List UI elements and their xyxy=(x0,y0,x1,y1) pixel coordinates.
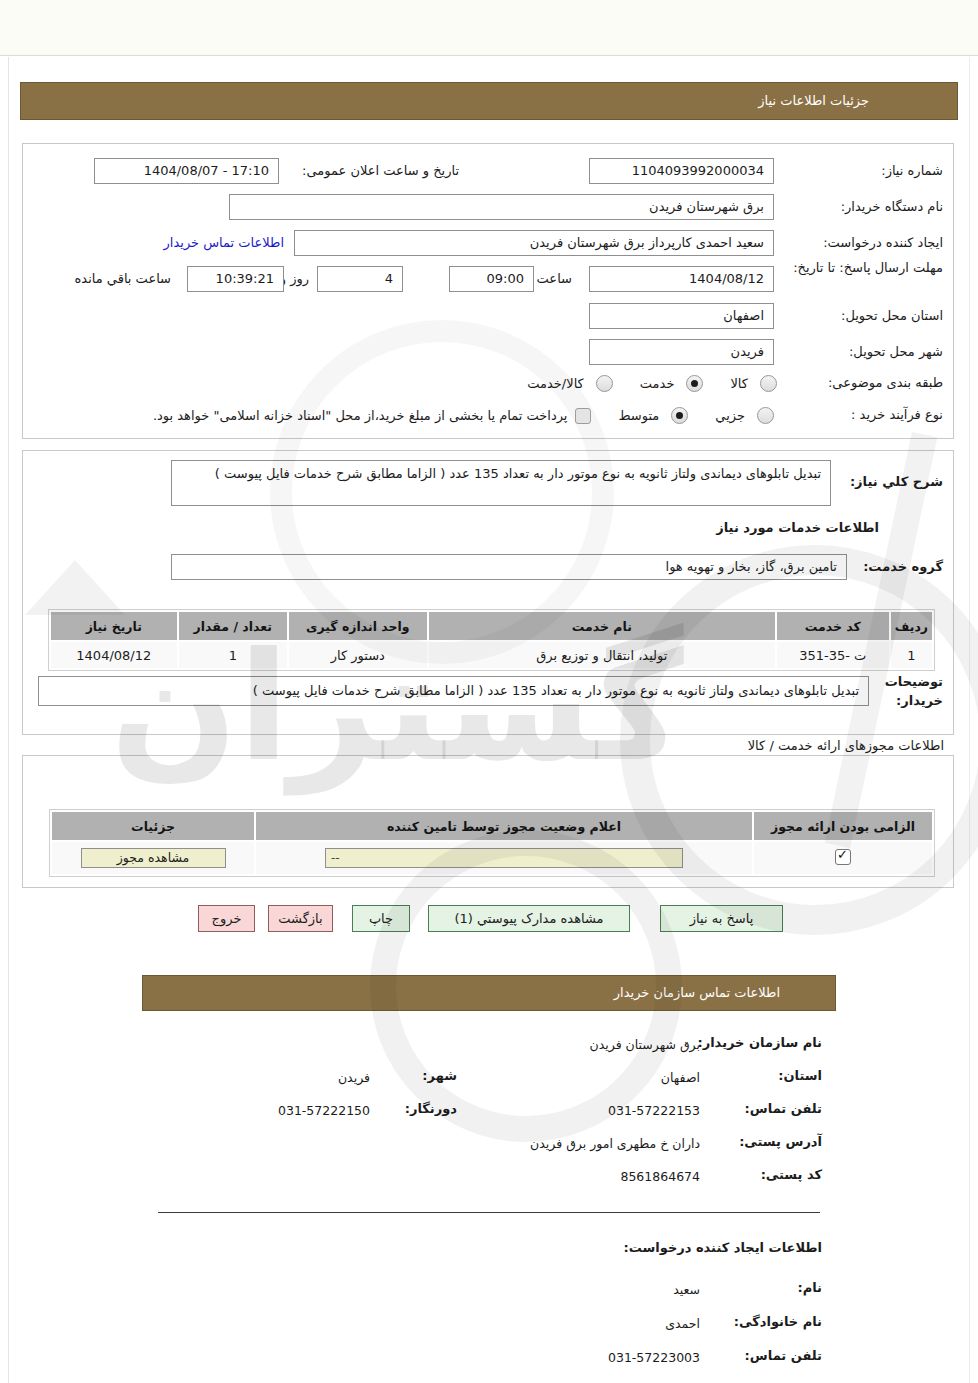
services-table: ردیف کد خدمت نام خدمت واحد اندازه گیری ت… xyxy=(48,609,935,671)
radio-service[interactable] xyxy=(686,375,703,392)
right-edge-divider xyxy=(969,57,970,1383)
service-group-value: تامین برق، گاز، بخار و تهویه هوا xyxy=(666,559,837,574)
exit-button[interactable]: خروج xyxy=(198,905,255,932)
remaining-time-value: 10:39:21 xyxy=(216,267,274,291)
treasury-option: پرداخت تمام یا بخشی از مبلغ خرید،از محل … xyxy=(153,408,592,424)
radio-goods-service[interactable] xyxy=(596,375,613,392)
license-required-checkbox[interactable] xyxy=(835,849,851,865)
category-option-goods: کالا xyxy=(730,375,777,392)
delivery-province-label: استان محل تحویل: xyxy=(841,303,943,329)
postal-address-label: آدرس پستی: xyxy=(739,1132,822,1152)
cell-license-details: مشاهده مجوز xyxy=(52,842,254,874)
col-service-name: نام خدمت xyxy=(429,612,775,640)
cell-service-code: 351-35- ت xyxy=(777,642,889,668)
process-type-label: نوع فرآیند خرید : xyxy=(851,406,943,424)
first-name-label: نام: xyxy=(798,1278,823,1298)
postal-code-label: کد پستی: xyxy=(761,1165,822,1185)
last-name-label: نام خانوادگی: xyxy=(734,1312,822,1332)
cell-unit: دستور کار xyxy=(289,642,427,668)
remaining-time-field[interactable]: 10:39:21 xyxy=(187,266,284,292)
radio-goods[interactable] xyxy=(760,375,777,392)
back-button[interactable]: بازگشت xyxy=(268,905,333,932)
buyer-org-field[interactable]: برق شهرستان فریدن xyxy=(229,194,774,220)
category-option-service: خدمت xyxy=(640,375,704,392)
deadline-time-value: 09:00 xyxy=(487,267,524,291)
service-group-label: گروه خدمت: xyxy=(863,554,943,580)
request-creator-value: سعید احمدی کارپرداز برق شهرستان فریدن xyxy=(530,235,764,250)
buyer-contact-bar: اطلاعات تماس سازمان خریدار xyxy=(142,975,836,1011)
radio-minor[interactable] xyxy=(757,407,774,424)
license-status-input[interactable]: -- xyxy=(325,848,683,868)
category-option-goods-service: کالا/خدمت xyxy=(527,375,613,392)
radio-goods-label: کالا xyxy=(730,376,748,391)
radio-minor-label: جزيي xyxy=(715,408,745,423)
creator-info-heading: اطلاعات ایجاد کننده درخواست: xyxy=(624,1238,822,1258)
need-number-value: 1104093992000034 xyxy=(632,159,764,183)
buyer-notes-value: تبدیل تابلوهای دیماندی ولتاز ثانویه به ن… xyxy=(253,683,859,698)
org-name-label: نام سازمان خریدار: xyxy=(697,1033,822,1053)
cell-service-name: تولید، انتقال و توزیع برق xyxy=(429,642,775,668)
buyer-notes-label: توضیحات خریدار: xyxy=(865,672,943,710)
need-info-form: شماره نیاز: 1104093992000034 تاریخ و ساع… xyxy=(22,143,954,439)
phone-value: 031-57222153 xyxy=(608,1103,700,1118)
buyer-contact-link[interactable]: اطلاعات تماس خریدار xyxy=(164,235,284,250)
days-and-label: روز و xyxy=(280,266,309,292)
services-info-heading: اطلاعات خدمات مورد نیاز xyxy=(716,515,879,541)
delivery-province-value: اصفهان xyxy=(723,308,764,323)
respond-button[interactable]: پاسخ به نیاز xyxy=(660,905,783,932)
services-table-header-row: ردیف کد خدمت نام خدمت واحد اندازه گیری ت… xyxy=(51,612,932,640)
delivery-city-field[interactable]: فریدن xyxy=(589,339,774,365)
col-license-details: جزئیات xyxy=(52,812,254,840)
creator-phone-label: تلفن تماس: xyxy=(745,1346,822,1366)
request-creator-field[interactable]: سعید احمدی کارپرداز برق شهرستان فریدن xyxy=(294,230,774,256)
cell-need-date: 1404/08/12 xyxy=(51,642,177,668)
buyer-contact-bar-title: اطلاعات تماس سازمان خریدار xyxy=(614,985,780,1000)
delivery-province-field[interactable]: اصفهان xyxy=(589,303,774,329)
services-section: شرح کلي نیاز: تبدیل تابلوهای دیماندی ولت… xyxy=(22,450,954,735)
radio-goods-service-label: کالا/خدمت xyxy=(527,376,584,391)
treasury-checkbox[interactable] xyxy=(575,408,591,424)
need-number-field[interactable]: 1104093992000034 xyxy=(589,158,774,184)
announce-datetime-field[interactable]: 1404/08/07 - 17:10 xyxy=(94,158,279,184)
last-name-value: احمدی xyxy=(665,1316,700,1331)
delivery-city-value: فریدن xyxy=(731,344,764,359)
deadline-date-value: 1404/08/12 xyxy=(689,267,764,291)
licenses-table: الزامی بودن ارائه مجوز اعلام وضعیت مجوز … xyxy=(49,809,935,877)
print-button[interactable]: چاپ xyxy=(352,905,410,932)
page-title: جزئیات اطلاعات نیاز xyxy=(758,93,869,108)
col-license-required: الزامی بودن ارائه مجوز xyxy=(754,812,932,840)
phone-label: تلفن تماس: xyxy=(745,1099,822,1119)
buyer-org-value: برق شهرستان فریدن xyxy=(649,199,764,214)
request-creator-label: ایجاد کننده درخواست: xyxy=(823,230,943,256)
licenses-table-header-row: الزامی بودن ارائه مجوز اعلام وضعیت مجوز … xyxy=(52,812,932,840)
fax-value: 031-57222150 xyxy=(278,1103,370,1118)
process-radio-group: جزيي متوسط پرداخت تمام یا بخشی از مبلغ خ… xyxy=(153,407,774,424)
services-table-row: 1 351-35- ت تولید، انتقال و توزیع برق دس… xyxy=(51,642,932,668)
first-name-value: سعید xyxy=(673,1282,700,1297)
col-license-status: اعلام وضعیت مجوز توسط تامین کننده xyxy=(256,812,752,840)
org-name-value: برق شهرستان فریدن xyxy=(590,1037,700,1052)
col-quantity: تعداد / مقدار xyxy=(179,612,287,640)
process-option-medium: متوسط xyxy=(618,407,688,424)
buyer-notes-field[interactable]: تبدیل تابلوهای دیماندی ولتاز ثانویه به ن… xyxy=(38,676,869,706)
remaining-days-value: 4 xyxy=(385,267,393,291)
col-row-index: ردیف xyxy=(891,612,932,640)
announce-datetime-label: تاریخ و ساعت اعلان عمومی: xyxy=(302,158,459,184)
category-label: طبقه بندی موضوعی: xyxy=(828,374,943,392)
city-label: شهر: xyxy=(422,1066,457,1086)
need-description-label: شرح کلي نیاز: xyxy=(850,469,943,495)
licenses-table-row: -- مشاهده مجوز xyxy=(52,842,932,874)
deadline-label: مهلت ارسال پاسخ: تا تاریخ: xyxy=(791,259,943,276)
need-details-page: جزئیات اطلاعات نیاز شماره نیاز: 11040939… xyxy=(0,0,978,1383)
cell-quantity: 1 xyxy=(179,642,287,668)
need-description-value: تبدیل تابلوهای دیماندی ولتاز ثانویه به ن… xyxy=(215,466,821,481)
service-group-field[interactable]: تامین برق، گاز، بخار و تهویه هوا xyxy=(171,554,847,580)
creator-phone-value: 031-57223003 xyxy=(608,1350,700,1365)
left-edge-divider xyxy=(8,57,9,1383)
announce-datetime-value: 1404/08/07 - 17:10 xyxy=(144,159,269,183)
col-unit: واحد اندازه گیری xyxy=(289,612,427,640)
cell-row-index: 1 xyxy=(891,642,932,668)
category-radio-group: کالا خدمت کالا/خدمت xyxy=(500,375,777,392)
deadline-date-field[interactable]: 1404/08/12 xyxy=(589,266,774,292)
postal-code-value: 8561864674 xyxy=(620,1169,700,1184)
licenses-section: الزامی بودن ارائه مجوز اعلام وضعیت مجوز … xyxy=(22,755,954,888)
province-label: استان: xyxy=(778,1066,822,1086)
hours-remaining-label: ساعت باقي مانده xyxy=(75,266,171,292)
postal-address-value: داران خ مطهری امور برق فریدن xyxy=(530,1136,700,1151)
remaining-days-field[interactable]: 4 xyxy=(317,266,403,292)
view-license-button[interactable]: مشاهده مجوز xyxy=(81,848,226,868)
radio-medium[interactable] xyxy=(671,407,688,424)
divider-line xyxy=(158,1212,820,1213)
top-strip xyxy=(0,0,978,56)
licenses-heading: اطلاعات مجوزهای ارائه خدمت / کالا xyxy=(748,733,944,759)
process-option-minor: جزيي xyxy=(715,407,774,424)
need-description-field[interactable]: تبدیل تابلوهای دیماندی ولتاز ثانویه به ن… xyxy=(171,460,831,506)
province-value: اصفهان xyxy=(661,1070,700,1085)
buyer-org-label: نام دستگاه خریدار: xyxy=(841,194,943,220)
fax-label: دورنگار: xyxy=(405,1099,457,1119)
deadline-hour-label: ساعت xyxy=(537,266,572,292)
cell-license-status: -- xyxy=(256,842,752,874)
radio-medium-label: متوسط xyxy=(618,408,659,423)
radio-service-label: خدمت xyxy=(640,376,675,391)
delivery-city-label: شهر محل تحویل: xyxy=(849,339,943,365)
page-title-bar: جزئیات اطلاعات نیاز xyxy=(20,82,958,120)
city-value: فریدن xyxy=(338,1070,370,1085)
need-number-label: شماره نیاز: xyxy=(881,158,943,184)
deadline-time-field[interactable]: 09:00 xyxy=(449,266,534,292)
col-service-code: کد خدمت xyxy=(777,612,889,640)
cell-license-required xyxy=(754,842,932,874)
view-attachments-button[interactable]: مشاهده مدارک پیوستي (1) xyxy=(428,905,630,932)
treasury-note-label: پرداخت تمام یا بخشی از مبلغ خرید،از محل … xyxy=(153,408,568,423)
col-need-date: تاریخ نیاز xyxy=(51,612,177,640)
